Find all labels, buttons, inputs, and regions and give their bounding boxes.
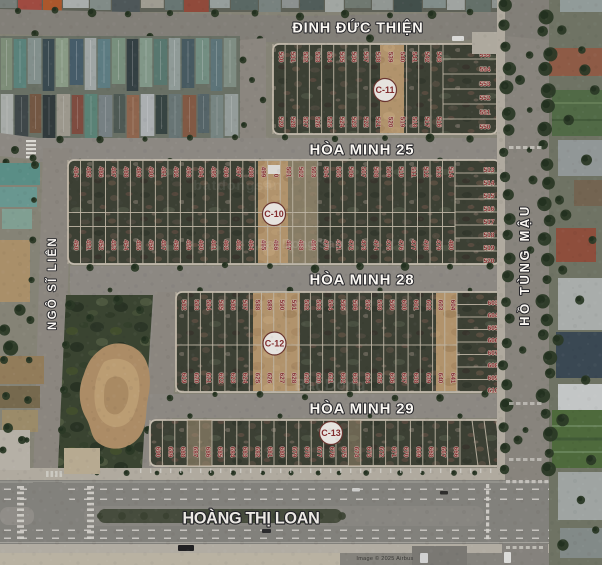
svg-text:HỒ TÙNG MẬU: HỒ TÙNG MẬU <box>517 204 532 326</box>
svg-text:Bat Dong San: Bat Dong San <box>257 236 342 251</box>
svg-text:HÒA MINH 25: HÒA MINH 25 <box>310 141 415 159</box>
svg-text:NGÔ SĨ LIÊN: NGÔ SĨ LIÊN <box>46 236 59 330</box>
svg-text:ĐINH ĐỨC THIỆN: ĐINH ĐỨC THIỆN <box>292 19 423 37</box>
svg-text:Bat Dong: Bat Dong <box>294 377 365 394</box>
svg-text:batdongsan: batdongsan <box>193 177 282 193</box>
svg-text:HÒA MINH 28: HÒA MINH 28 <box>310 271 415 289</box>
svg-text:HÒA MINH 29: HÒA MINH 29 <box>310 400 415 418</box>
